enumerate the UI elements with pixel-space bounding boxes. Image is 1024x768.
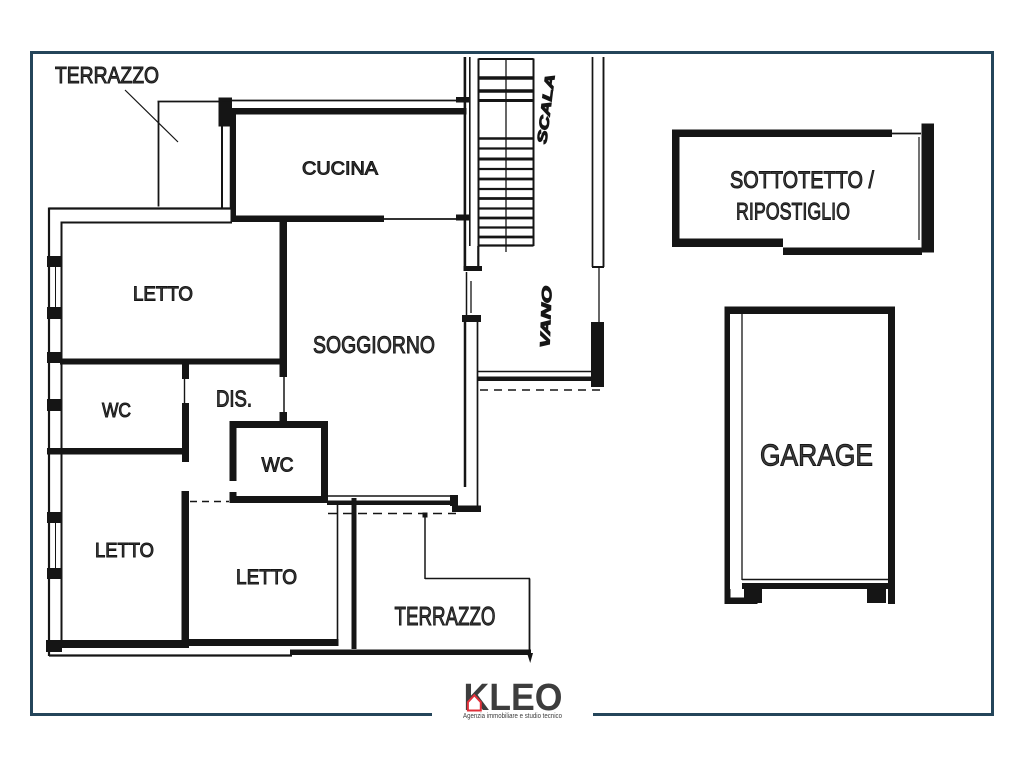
svg-text:DIS.: DIS. bbox=[216, 386, 252, 412]
svg-text:WC: WC bbox=[262, 454, 294, 477]
svg-text:Agenzia immobiliare e studio t: Agenzia immobiliare e studio tecnico bbox=[463, 711, 562, 720]
svg-text:RIPOSTIGLIO: RIPOSTIGLIO bbox=[736, 199, 850, 226]
svg-text:WC: WC bbox=[102, 399, 131, 422]
svg-text:VANO: VANO bbox=[537, 285, 554, 348]
svg-text:SOTTOTETTO /: SOTTOTETTO / bbox=[730, 167, 874, 194]
svg-text:GARAGE: GARAGE bbox=[760, 438, 873, 473]
svg-text:TERRAZZO: TERRAZZO bbox=[395, 601, 496, 631]
svg-text:LETTO: LETTO bbox=[236, 566, 297, 589]
svg-text:SOGGIORNO: SOGGIORNO bbox=[313, 332, 435, 359]
svg-text:CUCINA: CUCINA bbox=[302, 158, 379, 179]
svg-text:TERRAZZO: TERRAZZO bbox=[55, 62, 159, 88]
svg-text:LETTO: LETTO bbox=[133, 284, 193, 306]
svg-text:LETTO: LETTO bbox=[95, 539, 154, 562]
